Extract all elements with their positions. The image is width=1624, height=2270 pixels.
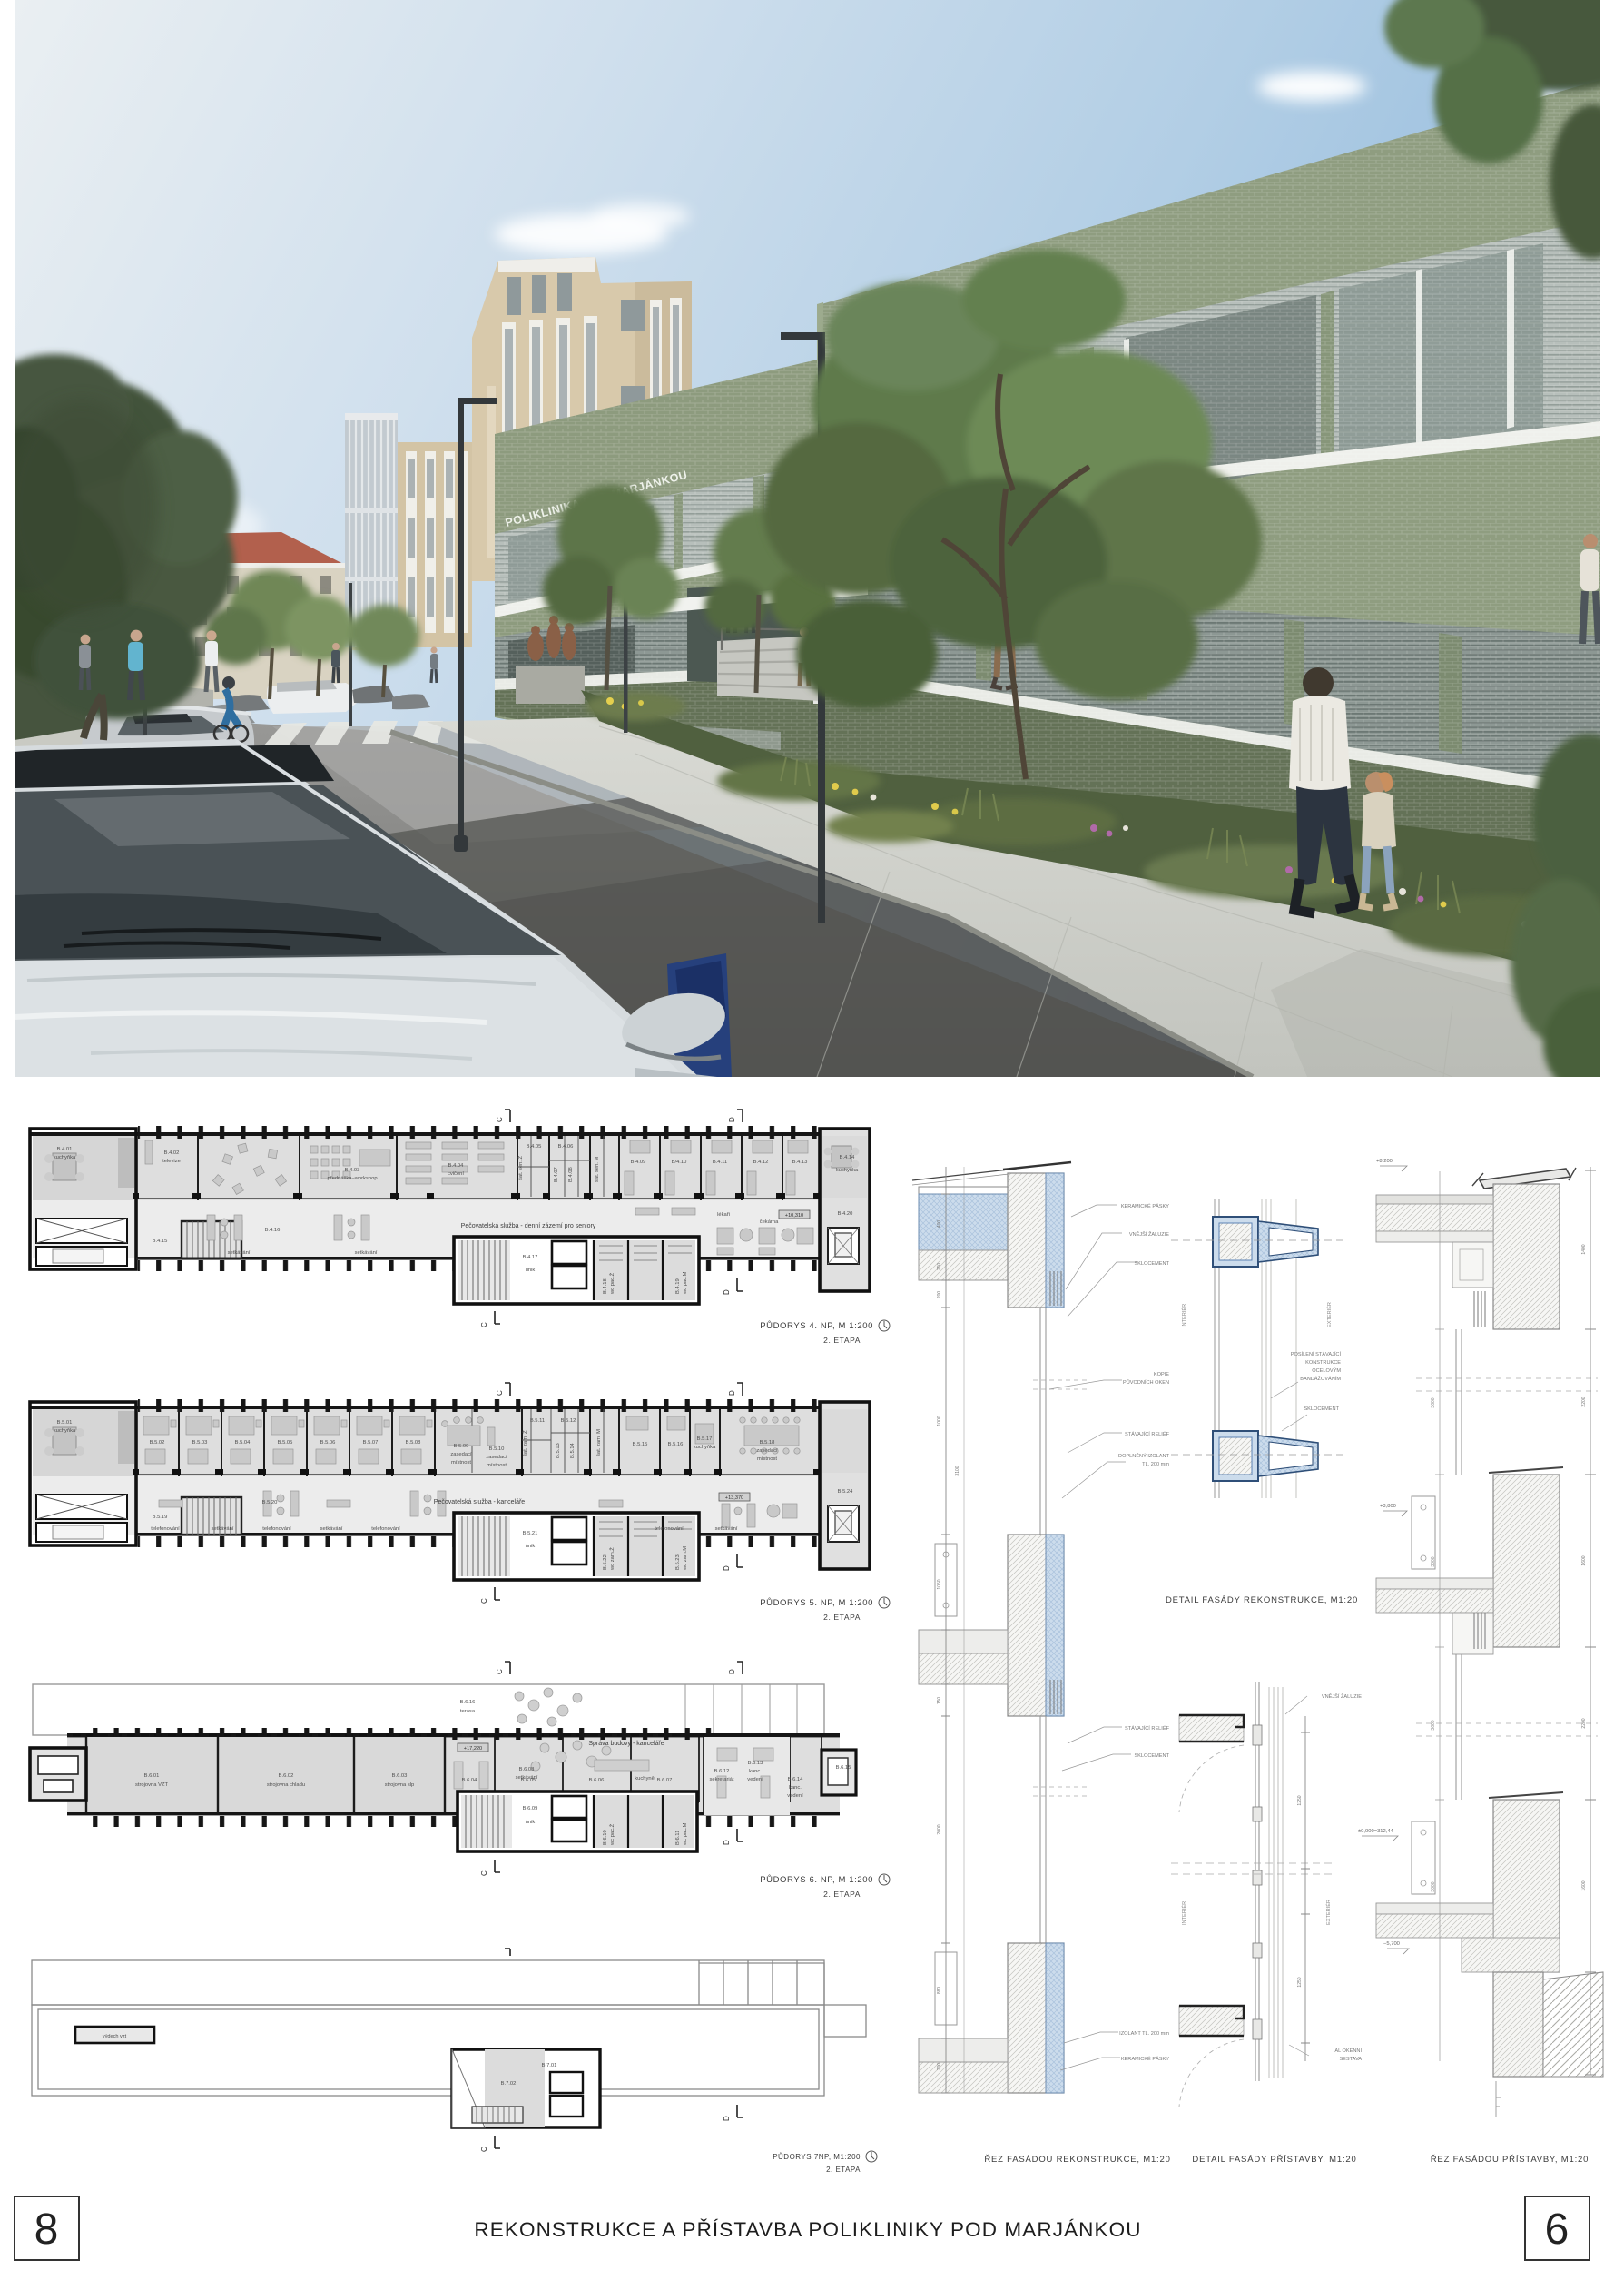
svg-text:B.4.08: B.4.08 bbox=[568, 1167, 574, 1182]
svg-text:místnost: místnost bbox=[451, 1460, 471, 1466]
svg-text:setkávání: setkávání bbox=[228, 1250, 251, 1256]
svg-text:B.6.04: B.6.04 bbox=[462, 1778, 478, 1783]
svg-text:±0,000=312,44: ±0,000=312,44 bbox=[1358, 1829, 1394, 1834]
svg-text:únik: únik bbox=[526, 1820, 536, 1825]
svg-text:B.5.24: B.5.24 bbox=[838, 1489, 854, 1495]
svg-text:1600: 1600 bbox=[1581, 1880, 1587, 1890]
svg-text:DOPLNĚNÝ IZOLANT: DOPLNĚNÝ IZOLANT bbox=[1118, 1452, 1170, 1459]
svg-text:B.6.11: B.6.11 bbox=[675, 1831, 681, 1845]
svg-text:B.5.17: B.5.17 bbox=[697, 1436, 713, 1442]
svg-text:D: D bbox=[728, 1117, 736, 1122]
svg-text:strojovna chladu: strojovna chladu bbox=[267, 1782, 305, 1788]
svg-text:kanc.: kanc. bbox=[749, 1769, 762, 1774]
svg-text:setkávání: setkávání bbox=[516, 1775, 538, 1781]
svg-text:B.7.02: B.7.02 bbox=[501, 2081, 517, 2087]
svg-text:Pečovatelská služba - denní zá: Pečovatelská služba - denní zázemí pro s… bbox=[461, 1223, 596, 1229]
svg-text:D: D bbox=[723, 1565, 731, 1571]
svg-text:ŘEZ FASÁDOU PŘÍSTAVBY, M1:20: ŘEZ FASÁDOU PŘÍSTAVBY, M1:20 bbox=[1431, 2155, 1589, 2165]
svg-text:EXTERIÉR: EXTERIÉR bbox=[1325, 1900, 1332, 1925]
svg-text:B.5.04: B.5.04 bbox=[235, 1440, 251, 1446]
svg-text:2. ETAPA: 2. ETAPA bbox=[823, 1613, 861, 1622]
svg-text:B.4.11: B.4.11 bbox=[713, 1160, 727, 1165]
svg-text:B.5.20: B.5.20 bbox=[262, 1500, 278, 1505]
svg-text:AL OKENNÍ: AL OKENNÍ bbox=[1334, 2048, 1362, 2054]
svg-text:únik: únik bbox=[526, 1268, 536, 1273]
svg-text:B.5.01: B.5.01 bbox=[57, 1420, 73, 1426]
svg-text:Pečovatelská služba - kancelář: Pečovatelská služba - kanceláře bbox=[434, 1499, 525, 1505]
svg-text:B.4.15: B.4.15 bbox=[153, 1239, 168, 1244]
svg-text:+13,370: +13,370 bbox=[725, 1495, 743, 1501]
svg-text:1000: 1000 bbox=[937, 1416, 942, 1426]
svg-text:vedení: vedení bbox=[787, 1793, 803, 1799]
svg-text:1250: 1250 bbox=[1297, 1795, 1303, 1805]
svg-text:vedení: vedení bbox=[747, 1777, 763, 1782]
svg-text:telefonování: telefonování bbox=[655, 1526, 684, 1532]
svg-text:strojovna slp: strojovna slp bbox=[385, 1782, 415, 1788]
svg-text:SESTAVA: SESTAVA bbox=[1339, 2057, 1362, 2062]
svg-text:B.5.14: B.5.14 bbox=[570, 1442, 576, 1458]
svg-text:TL. 200 mm: TL. 200 mm bbox=[1142, 1462, 1169, 1467]
svg-text:B.4.09: B.4.09 bbox=[631, 1160, 646, 1165]
svg-text:kuchyňka: kuchyňka bbox=[836, 1168, 859, 1173]
svg-text:C: C bbox=[480, 1598, 488, 1604]
svg-text:B.5.13: B.5.13 bbox=[556, 1443, 561, 1458]
svg-text:B.6.06: B.6.06 bbox=[589, 1778, 605, 1783]
svg-text:INTERIÉR: INTERIÉR bbox=[1181, 1304, 1187, 1327]
svg-text:wc pac.Ž: wc pac.Ž bbox=[608, 1272, 615, 1295]
svg-text:D: D bbox=[723, 1840, 731, 1845]
svg-text:B.4.07: B.4.07 bbox=[554, 1167, 559, 1182]
svg-text:setkávání: setkávání bbox=[212, 1526, 234, 1532]
svg-text:KOPIE: KOPIE bbox=[1154, 1372, 1169, 1377]
svg-text:2200: 2200 bbox=[1581, 1718, 1587, 1728]
svg-text:lékaři: lékaři bbox=[717, 1212, 730, 1218]
svg-text:8: 8 bbox=[34, 2206, 59, 2254]
svg-text:setkávání: setkávání bbox=[355, 1250, 378, 1256]
svg-text:REKONSTRUKCE A PŘÍSTAVBA POLIK: REKONSTRUKCE A PŘÍSTAVBA POLIKLINIKY POD… bbox=[474, 2218, 1141, 2241]
svg-text:KONSTRUKCE: KONSTRUKCE bbox=[1305, 1360, 1341, 1366]
svg-text:200: 200 bbox=[937, 2063, 942, 2071]
svg-text:D: D bbox=[728, 1669, 736, 1674]
svg-text:telefonování: telefonování bbox=[371, 1526, 400, 1532]
svg-text:D: D bbox=[728, 1390, 736, 1396]
svg-text:VNĚJŠÍ ŽALUZIE: VNĚJŠÍ ŽALUZIE bbox=[1129, 1230, 1169, 1238]
svg-text:B.5.02: B.5.02 bbox=[150, 1440, 165, 1446]
svg-text:2. ETAPA: 2. ETAPA bbox=[823, 1336, 861, 1345]
svg-text:B.5.06: B.5.06 bbox=[320, 1440, 336, 1446]
svg-text:B.5.22: B.5.22 bbox=[603, 1554, 608, 1570]
svg-text:2000: 2000 bbox=[937, 1824, 942, 1834]
svg-text:C: C bbox=[480, 1870, 488, 1876]
svg-text:C: C bbox=[496, 1390, 504, 1396]
svg-text:B.5.15: B.5.15 bbox=[633, 1442, 648, 1447]
svg-text:šat. zam. M: šat. zam. M bbox=[596, 1429, 602, 1456]
svg-text:B.4.01: B.4.01 bbox=[57, 1147, 73, 1152]
svg-text:1050: 1050 bbox=[937, 1579, 942, 1589]
svg-text:B.5.23: B.5.23 bbox=[675, 1554, 681, 1570]
svg-text:B.6.07: B.6.07 bbox=[657, 1778, 673, 1783]
svg-text:PŮDORYS 4. NP, M 1:200: PŮDORYS 4. NP, M 1:200 bbox=[760, 1320, 873, 1331]
svg-text:OCELOVÝM: OCELOVÝM bbox=[1312, 1367, 1341, 1374]
svg-text:zasedací: zasedací bbox=[486, 1455, 507, 1460]
svg-text:kuchyňka: kuchyňka bbox=[54, 1428, 76, 1434]
svg-text:kuchyně: kuchyně bbox=[635, 1776, 655, 1781]
svg-text:B.5.10: B.5.10 bbox=[489, 1446, 505, 1452]
svg-text:1600: 1600 bbox=[1581, 1555, 1587, 1565]
svg-text:KERAMICKÉ PÁSKY: KERAMICKÉ PÁSKY bbox=[1121, 1203, 1169, 1209]
svg-text:D: D bbox=[723, 1289, 731, 1295]
svg-text:BANDÁŽOVÁNÍM: BANDÁŽOVÁNÍM bbox=[1300, 1375, 1341, 1382]
svg-text:C: C bbox=[496, 1669, 504, 1674]
svg-text:PŮDORYS 6. NP, M 1:200: PŮDORYS 6. NP, M 1:200 bbox=[760, 1874, 873, 1885]
svg-text:telefonování: telefonování bbox=[262, 1526, 291, 1532]
svg-text:C: C bbox=[496, 1117, 504, 1122]
svg-text:B.4.16: B.4.16 bbox=[265, 1228, 281, 1233]
svg-text:wc pac.M: wc pac.M bbox=[683, 1822, 688, 1846]
svg-text:Správa budovy - kanceláře: Správa budovy - kanceláře bbox=[588, 1741, 664, 1747]
svg-text:B.5.12: B.5.12 bbox=[561, 1418, 576, 1424]
svg-text:B.6.02: B.6.02 bbox=[279, 1773, 294, 1779]
svg-text:3100: 3100 bbox=[955, 1466, 960, 1475]
svg-text:místnost: místnost bbox=[487, 1463, 507, 1468]
svg-text:3000: 3000 bbox=[1431, 1556, 1436, 1566]
svg-text:STÁVAJÍCÍ RELIÉF: STÁVAJÍCÍ RELIÉF bbox=[1125, 1431, 1170, 1437]
svg-text:B.6.14: B.6.14 bbox=[788, 1777, 804, 1782]
svg-text:2200: 2200 bbox=[1581, 1397, 1587, 1406]
svg-text:cvičení: cvičení bbox=[448, 1171, 464, 1177]
svg-text:čekárna: čekárna bbox=[760, 1219, 779, 1225]
svg-text:+3,800: +3,800 bbox=[1380, 1504, 1396, 1509]
svg-text:zasedací: zasedací bbox=[756, 1448, 778, 1454]
svg-text:B.6.03: B.6.03 bbox=[392, 1773, 408, 1779]
svg-text:−5,700: −5,700 bbox=[1383, 1941, 1400, 1947]
svg-text:B.4.13: B.4.13 bbox=[792, 1160, 808, 1165]
svg-text:DETAIL FASÁDY PŘÍSTAVBY, M1:20: DETAIL FASÁDY PŘÍSTAVBY, M1:20 bbox=[1192, 2155, 1356, 2165]
svg-text:kuchyňka: kuchyňka bbox=[54, 1155, 76, 1160]
svg-text:B.6.01: B.6.01 bbox=[144, 1773, 160, 1779]
svg-text:šat. sen. M: šat. sen. M bbox=[595, 1156, 600, 1182]
svg-text:B.4.18: B.4.18 bbox=[603, 1278, 608, 1294]
svg-text:B.4.12: B.4.12 bbox=[753, 1160, 769, 1165]
svg-text:C: C bbox=[480, 2147, 488, 2152]
svg-text:PŮVODNÍCH OKEN: PŮVODNÍCH OKEN bbox=[1123, 1379, 1169, 1386]
svg-text:250: 250 bbox=[937, 1263, 942, 1271]
svg-text:B.6.08: B.6.08 bbox=[519, 1767, 535, 1772]
svg-text:B.4.04: B.4.04 bbox=[448, 1163, 465, 1169]
svg-text:SKLOCEMENT: SKLOCEMENT bbox=[1304, 1406, 1339, 1412]
svg-text:B.4.20: B.4.20 bbox=[838, 1211, 853, 1217]
svg-text:KERAMICKÉ PÁSKY: KERAMICKÉ PÁSKY bbox=[1121, 2056, 1169, 2062]
svg-text:sekretariát: sekretariát bbox=[709, 1777, 733, 1782]
svg-text:B/4.10: B/4.10 bbox=[672, 1160, 687, 1165]
svg-text:terasa: terasa bbox=[460, 1709, 476, 1714]
svg-text:setkávání: setkávání bbox=[320, 1526, 343, 1532]
svg-text:B.5.08: B.5.08 bbox=[406, 1440, 421, 1446]
svg-text:2. ETAPA: 2. ETAPA bbox=[826, 2166, 861, 2174]
svg-text:IZOLANT TL. 200 mm: IZOLANT TL. 200 mm bbox=[1119, 2031, 1169, 2037]
svg-text:šat. sen. Ž: šat. sen. Ž bbox=[517, 1155, 524, 1180]
svg-text:DETAIL FASÁDY REKONSTRUKCE, M1: DETAIL FASÁDY REKONSTRUKCE, M1:20 bbox=[1166, 1595, 1358, 1605]
svg-text:B.4.03: B.4.03 bbox=[345, 1168, 360, 1173]
svg-text:150: 150 bbox=[937, 1697, 942, 1705]
svg-text:D: D bbox=[723, 2116, 731, 2121]
svg-text:200: 200 bbox=[937, 1291, 942, 1299]
svg-text:šat. zam. Ž: šat. zam. Ž bbox=[521, 1430, 528, 1456]
svg-text:místnost: místnost bbox=[757, 1456, 777, 1462]
svg-text:kanc.: kanc. bbox=[789, 1785, 802, 1791]
svg-text:B.6.13: B.6.13 bbox=[748, 1761, 763, 1766]
svg-text:STÁVAJÍCÍ RELIÉF: STÁVAJÍCÍ RELIÉF bbox=[1125, 1725, 1170, 1732]
svg-text:B.4.17: B.4.17 bbox=[523, 1255, 538, 1260]
svg-text:B.4.19: B.4.19 bbox=[675, 1278, 681, 1294]
svg-text:+10,310: +10,310 bbox=[785, 1213, 803, 1219]
svg-text:3000: 3000 bbox=[1431, 1881, 1436, 1891]
svg-text:B.5.11: B.5.11 bbox=[530, 1418, 545, 1424]
svg-text:B.4.06: B.4.06 bbox=[558, 1144, 574, 1150]
svg-text:B.5.09: B.5.09 bbox=[454, 1444, 469, 1449]
svg-text:kuchyňka: kuchyňka bbox=[694, 1445, 716, 1450]
svg-text:3600: 3600 bbox=[1431, 1397, 1436, 1407]
svg-text:VNĚJŠÍ ŽALUZIE: VNĚJŠÍ ŽALUZIE bbox=[1322, 1693, 1362, 1700]
svg-text:6: 6 bbox=[1545, 2206, 1570, 2254]
svg-text:televize: televize bbox=[162, 1159, 181, 1164]
svg-text:INTERIÉR: INTERIÉR bbox=[1181, 1901, 1187, 1925]
svg-text:strojovna VZT: strojovna VZT bbox=[135, 1782, 169, 1788]
svg-text:B.5.03: B.5.03 bbox=[192, 1440, 208, 1446]
svg-text:EXTERIÉR: EXTERIÉR bbox=[1326, 1302, 1333, 1327]
svg-text:přednáška–workshop: přednáška–workshop bbox=[327, 1176, 377, 1181]
svg-text:1250: 1250 bbox=[1297, 1977, 1303, 1987]
svg-text:zasedací: zasedací bbox=[450, 1452, 472, 1457]
svg-text:B.7.01: B.7.01 bbox=[542, 2063, 557, 2068]
svg-text:B.5.21: B.5.21 bbox=[523, 1531, 538, 1536]
svg-text:2. ETAPA: 2. ETAPA bbox=[823, 1890, 861, 1899]
svg-text:+8,200: +8,200 bbox=[1376, 1159, 1393, 1164]
svg-text:B.6.10: B.6.10 bbox=[603, 1830, 608, 1845]
svg-text:únik: únik bbox=[526, 1544, 536, 1549]
svg-text:wc zam.Ž: wc zam.Ž bbox=[608, 1547, 615, 1571]
svg-text:B.5.18: B.5.18 bbox=[760, 1440, 775, 1446]
svg-text:telefonování: telefonování bbox=[151, 1526, 180, 1532]
svg-text:wc pac.M: wc pac.M bbox=[683, 1271, 688, 1295]
svg-text:PŮDORYS 5. NP, M 1:200: PŮDORYS 5. NP, M 1:200 bbox=[760, 1597, 873, 1608]
svg-text:SKLOCEMENT: SKLOCEMENT bbox=[1134, 1753, 1169, 1759]
svg-text:B.6.16: B.6.16 bbox=[460, 1700, 476, 1705]
svg-text:wc pac.Ž: wc pac.Ž bbox=[608, 1823, 615, 1846]
svg-text:SKLOCEMENT: SKLOCEMENT bbox=[1134, 1261, 1169, 1267]
svg-text:B.6.12: B.6.12 bbox=[714, 1769, 730, 1774]
svg-text:880: 880 bbox=[937, 1987, 942, 1995]
svg-text:B.4.05: B.4.05 bbox=[527, 1144, 542, 1150]
svg-text:B.4.02: B.4.02 bbox=[164, 1150, 180, 1156]
svg-text:PŮDORYS 7NP, M1:200: PŮDORYS 7NP, M1:200 bbox=[773, 2153, 861, 2161]
svg-text:výdech vzt: výdech vzt bbox=[103, 2034, 127, 2039]
svg-text:wc zam.M: wc zam.M bbox=[683, 1546, 688, 1571]
svg-text:B.4.14: B.4.14 bbox=[840, 1155, 856, 1160]
svg-text:setkávání: setkávání bbox=[715, 1526, 738, 1532]
svg-text:B.5.05: B.5.05 bbox=[278, 1440, 293, 1446]
svg-text:B.6.15: B.6.15 bbox=[836, 1765, 851, 1771]
svg-text:3600: 3600 bbox=[1431, 1720, 1436, 1730]
svg-text:ŘEZ FASÁDOU REKONSTRUKCE, M1:2: ŘEZ FASÁDOU REKONSTRUKCE, M1:20 bbox=[984, 2155, 1170, 2165]
svg-text:POSÍLENÍ STÁVAJÍCÍ: POSÍLENÍ STÁVAJÍCÍ bbox=[1291, 1351, 1342, 1357]
svg-text:1400: 1400 bbox=[1581, 1244, 1587, 1254]
svg-text:400: 400 bbox=[937, 1220, 942, 1229]
svg-text:B.5.07: B.5.07 bbox=[363, 1440, 379, 1446]
svg-text:C: C bbox=[480, 1322, 488, 1327]
svg-text:B.5.16: B.5.16 bbox=[668, 1442, 684, 1447]
svg-text:+17,220: +17,220 bbox=[464, 1746, 482, 1752]
svg-text:B.5.19: B.5.19 bbox=[153, 1515, 168, 1520]
svg-text:B.6.09: B.6.09 bbox=[523, 1806, 538, 1811]
